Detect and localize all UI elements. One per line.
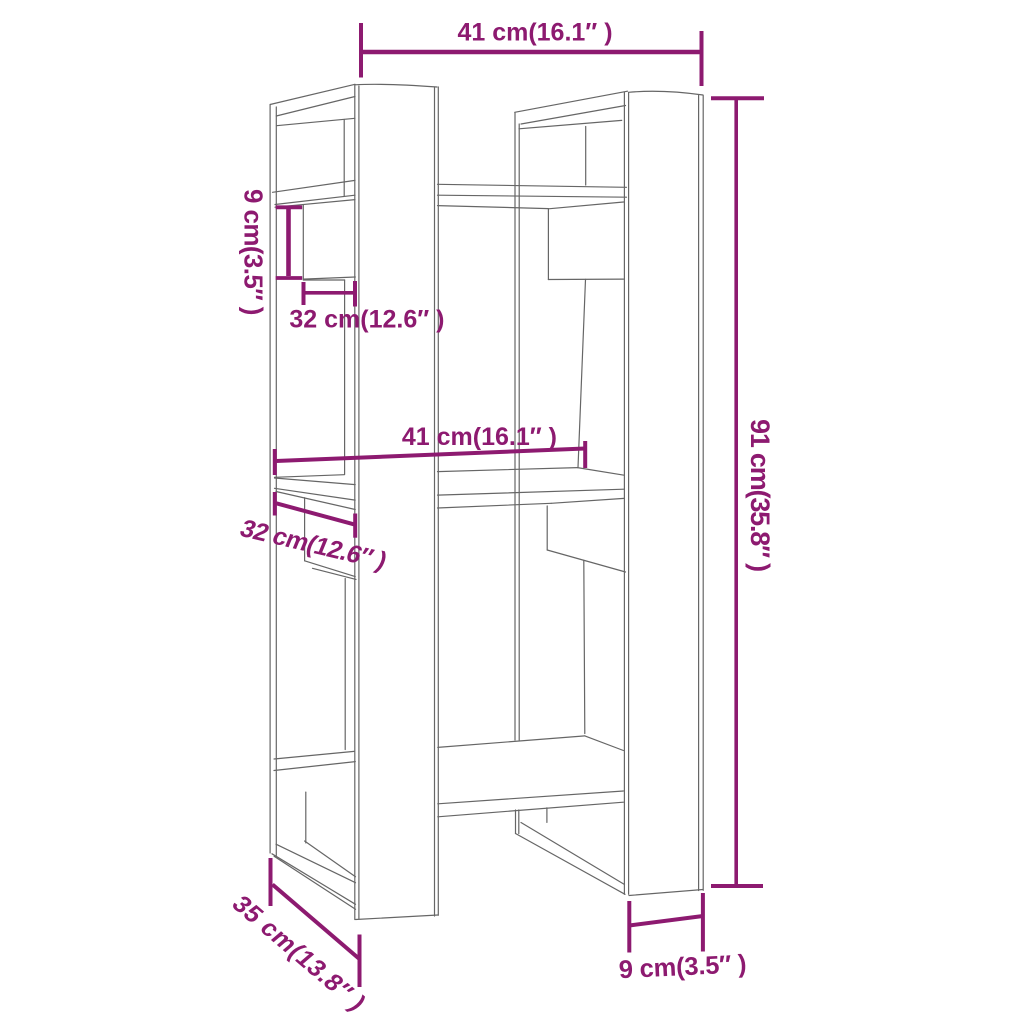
svg-text:41 cm(16.1″ ): 41 cm(16.1″ ) <box>457 18 612 46</box>
svg-text:32 cm(12.6″ ): 32 cm(12.6″ ) <box>289 306 444 334</box>
svg-text:41 cm(16.1″ ): 41 cm(16.1″ ) <box>402 423 557 451</box>
svg-text:91 cm(35.8″ ): 91 cm(35.8″ ) <box>745 419 775 571</box>
svg-text:9 cm(3.5″ ): 9 cm(3.5″ ) <box>239 189 269 315</box>
